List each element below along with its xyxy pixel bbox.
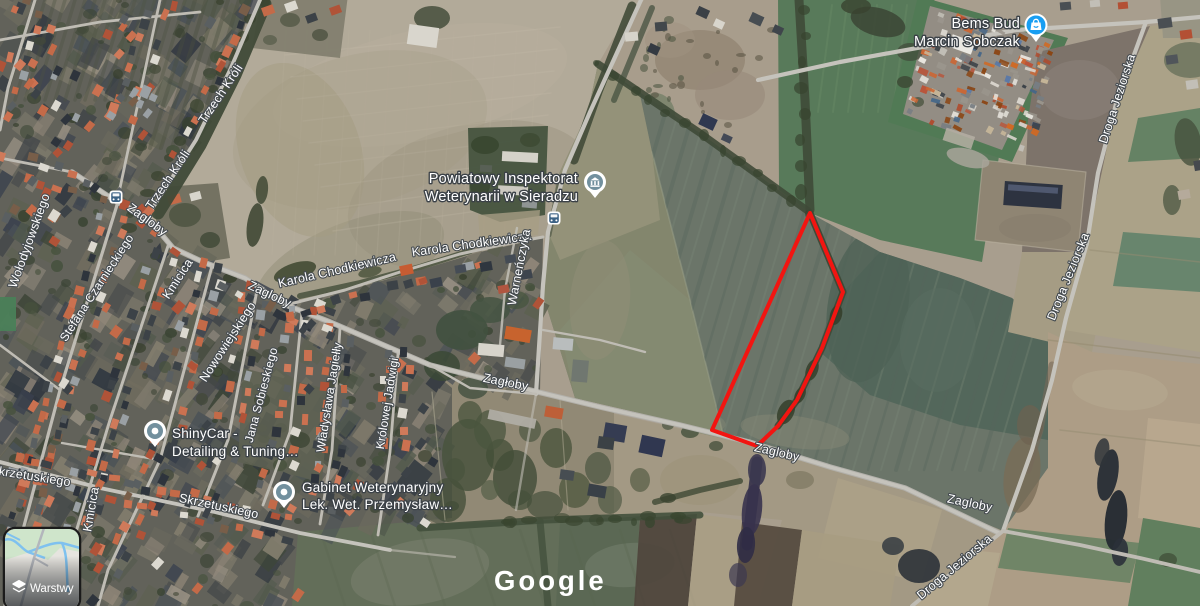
- svg-text:Gabinet Weterynaryjny: Gabinet Weterynaryjny: [302, 480, 443, 495]
- svg-text:Detailing & Tuning…: Detailing & Tuning…: [172, 444, 299, 459]
- svg-text:Marcin Sobczak: Marcin Sobczak: [914, 34, 1020, 50]
- svg-text:Bems Bud: Bems Bud: [952, 16, 1021, 32]
- svg-text:Lek. Wet. Przemysław…: Lek. Wet. Przemysław…: [302, 497, 453, 512]
- svg-text:Warstwy: Warstwy: [30, 583, 74, 595]
- svg-text:Powiatowy Inspektorat: Powiatowy Inspektorat: [429, 171, 578, 187]
- svg-text:Google: Google: [494, 565, 607, 596]
- svg-text:Weterynarii w Sieradzu: Weterynarii w Sieradzu: [425, 189, 578, 205]
- svg-text:ShinyCar -: ShinyCar -: [172, 426, 238, 441]
